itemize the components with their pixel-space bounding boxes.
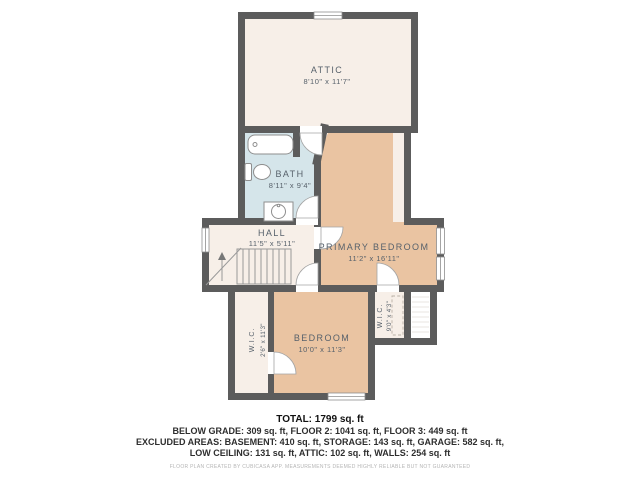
attic-label: ATTIC — [311, 65, 343, 75]
bedroom-dimensions: 10'0" x 11'3" — [298, 345, 345, 354]
room-bedroom — [271, 292, 371, 396]
excluded-areas-text-2: LOW CEILING: 131 sq. ft, ATTIC: 102 sq. … — [0, 448, 640, 459]
sink-icon — [264, 202, 293, 221]
bath-label: BATH — [276, 169, 305, 179]
disclaimer-text: FLOOR PLAN CREATED BY CUBICASA APP. MEAS… — [0, 464, 640, 470]
floor-plan-page: ATTIC 8'10" x 11'7" BATH 8'11" x 9'4" HA… — [0, 0, 640, 480]
wic-right-dimensions: 9'0" x 4'3" — [386, 301, 393, 331]
hall-label: HALL — [258, 228, 286, 238]
toilet-icon — [245, 164, 271, 181]
wic-left-dimensions: 2'6" x 11'3" — [260, 323, 267, 357]
floor-plan-drawing: ATTIC 8'10" x 11'7" BATH 8'11" x 9'4" HA… — [0, 0, 640, 480]
window-hall-left — [202, 228, 209, 252]
area-summary: TOTAL: 1799 sq. ft BELOW GRADE: 309 sq. … — [0, 414, 640, 470]
excluded-areas-text-1: EXCLUDED AREAS: BASEMENT: 410 sq. ft, ST… — [0, 437, 640, 448]
hall-dimensions: 11'5" x 5'11" — [249, 239, 296, 248]
total-area-text: TOTAL: 1799 sq. ft — [0, 414, 640, 426]
primary-bedroom-label: PRIMARY BEDROOM — [319, 242, 430, 252]
window-primary-right-2 — [437, 257, 445, 280]
wic-right-label: W.I.C. — [377, 304, 384, 328]
bedroom-label: BEDROOM — [294, 333, 350, 343]
wic-left-label: W.I.C. — [249, 328, 256, 352]
window-attic-top — [314, 12, 342, 19]
bathtub-icon — [248, 135, 293, 154]
floors-area-text: BELOW GRADE: 309 sq. ft, FLOOR 2: 1041 s… — [0, 426, 640, 437]
primary-bedroom-dimensions: 11'2" x 16'11" — [348, 254, 399, 263]
low-ceiling-strip — [393, 130, 404, 222]
attic-dimensions: 8'10" x 11'7" — [303, 77, 350, 86]
bath-dimensions: 8'11" x 9'4" — [269, 181, 311, 190]
window-primary-right-1 — [437, 228, 445, 254]
window-bedroom-bottom — [328, 393, 365, 400]
